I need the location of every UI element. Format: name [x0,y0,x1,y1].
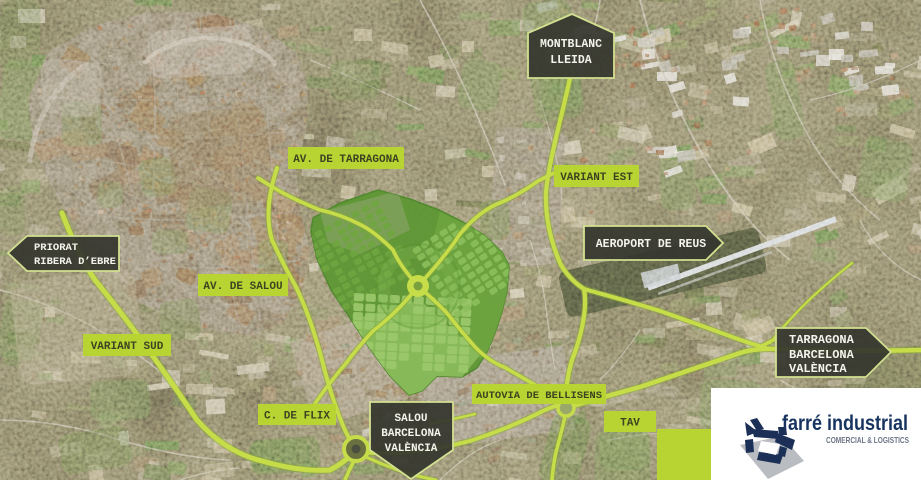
svg-text:COMERCIAL & LOGISTICS: COMERCIAL & LOGISTICS [826,435,909,445]
svg-text:SALOU: SALOU [394,413,427,425]
svg-text:C. DE FLIX: C. DE FLIX [264,411,330,423]
svg-text:VALÈNCIA: VALÈNCIA [789,361,847,376]
svg-text:PRIORAT: PRIORAT [34,242,78,254]
svg-text:BARCELONA: BARCELONA [789,348,855,362]
svg-text:TARRAGONA: TARRAGONA [789,333,855,347]
svg-text:farré industrial: farré industrial [782,412,908,435]
svg-text:MONTBLANC: MONTBLANC [540,38,602,51]
svg-text:RIBERA D’EBRE: RIBERA D’EBRE [34,256,116,268]
svg-text:VARIANT EST: VARIANT EST [560,172,633,184]
svg-text:AEROPORT DE REUS: AEROPORT DE REUS [596,238,707,251]
svg-text:VALÈNCIA: VALÈNCIA [385,441,438,455]
svg-text:LLEIDA: LLEIDA [550,54,592,67]
svg-text:AUTOVIA DE BELLISENS: AUTOVIA DE BELLISENS [476,390,602,402]
svg-text:AV. DE SALOU: AV. DE SALOU [203,281,282,293]
svg-text:TAV: TAV [620,418,640,430]
svg-text:VARIANT SUD: VARIANT SUD [91,341,164,353]
svg-text:AV. DE TARRAGONA: AV. DE TARRAGONA [293,154,399,166]
svg-text:BARCELONA: BARCELONA [381,428,441,440]
